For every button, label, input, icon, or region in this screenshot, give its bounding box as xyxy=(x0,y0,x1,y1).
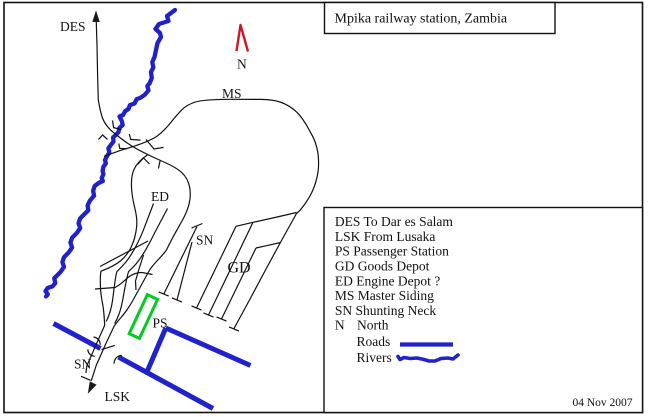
svg-text:LSK: LSK xyxy=(105,389,131,404)
svg-text:PS: PS xyxy=(153,316,168,331)
svg-text:North: North xyxy=(357,318,389,333)
svg-text:MS: MS xyxy=(222,86,242,101)
svg-text:ED Engine Depot ?: ED Engine Depot ? xyxy=(335,273,440,288)
svg-text:MS Master Siding: MS Master Siding xyxy=(335,288,434,303)
svg-text:04 Nov 2007: 04 Nov 2007 xyxy=(573,397,633,409)
svg-text:Mpika railway station, Zambia: Mpika railway station, Zambia xyxy=(335,12,508,27)
svg-text:SN Shunting Neck: SN Shunting Neck xyxy=(335,303,437,318)
svg-text:ED: ED xyxy=(151,189,169,204)
svg-text:DES To Dar es Salam: DES To Dar es Salam xyxy=(335,214,454,229)
svg-text:SN: SN xyxy=(74,357,92,372)
svg-text:DES: DES xyxy=(60,19,86,34)
svg-text:GD: GD xyxy=(228,260,251,277)
svg-text:Roads: Roads xyxy=(357,334,391,349)
svg-text:PS Passenger Station: PS Passenger Station xyxy=(335,244,449,259)
svg-text:GD Goods Depot: GD Goods Depot xyxy=(335,259,430,274)
svg-text:LSK From Lusaka: LSK From Lusaka xyxy=(335,229,436,244)
svg-text:N: N xyxy=(335,318,345,333)
svg-text:N: N xyxy=(237,56,247,71)
svg-text:SN: SN xyxy=(196,233,214,248)
svg-text:Rivers: Rivers xyxy=(357,350,392,365)
